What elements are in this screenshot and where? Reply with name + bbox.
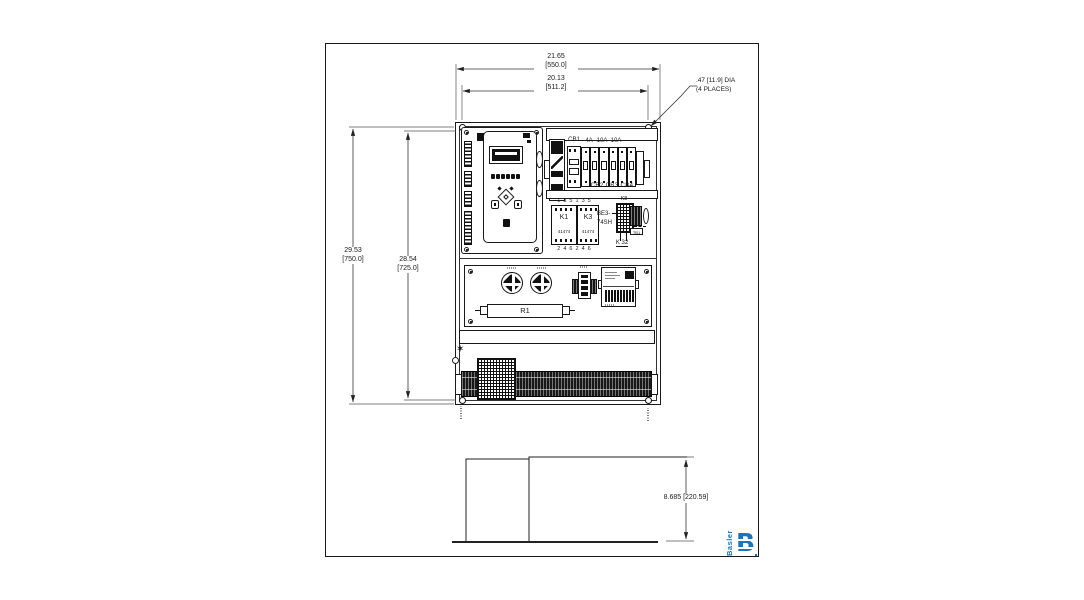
- dim-height-inner-in: 28.54: [394, 256, 422, 265]
- engineering-drawing-sheet: { "dims": { "top_outer_in": "21.65", "to…: [0, 0, 1084, 600]
- side-view-outline: [452, 457, 687, 542]
- dim-depth: 8.685 [220.59]: [656, 494, 716, 503]
- basler-logo: Basler B: [723, 528, 759, 558]
- dim-width-outer: 21.65 [550.0]: [534, 53, 578, 70]
- dim-width-inner: 20.13 [511.2]: [534, 75, 578, 92]
- hole-note-line2: (4 PLACES): [696, 86, 748, 95]
- hole-note-line1: .47 [11.9] DIA: [696, 77, 748, 86]
- dim-width-inner-mm: [511.2]: [535, 84, 577, 93]
- basler-logo-b-icon: B: [736, 530, 755, 555]
- hole-note: .47 [11.9] DIA (4 PLACES): [695, 77, 749, 94]
- dim-width-outer-in: 21.65: [535, 53, 577, 62]
- basler-logo-wordmark: Basler: [725, 530, 734, 556]
- basler-logo-stripe-1: [735, 539, 757, 541]
- basler-logo-reg-dot: [755, 554, 757, 556]
- dim-height-inner: 28.54 [725.0]: [393, 256, 423, 273]
- basler-logo-stripe-2: [735, 547, 757, 549]
- dim-height-inner-mm: [725.0]: [394, 265, 422, 274]
- dim-height-outer-in: 29.53: [339, 247, 367, 256]
- dim-height-outer: 29.53 [750.0]: [338, 247, 368, 264]
- dim-height-outer-mm: [750.0]: [339, 256, 367, 265]
- dim-width-outer-mm: [550.0]: [535, 62, 577, 71]
- dim-width-inner-in: 20.13: [535, 75, 577, 84]
